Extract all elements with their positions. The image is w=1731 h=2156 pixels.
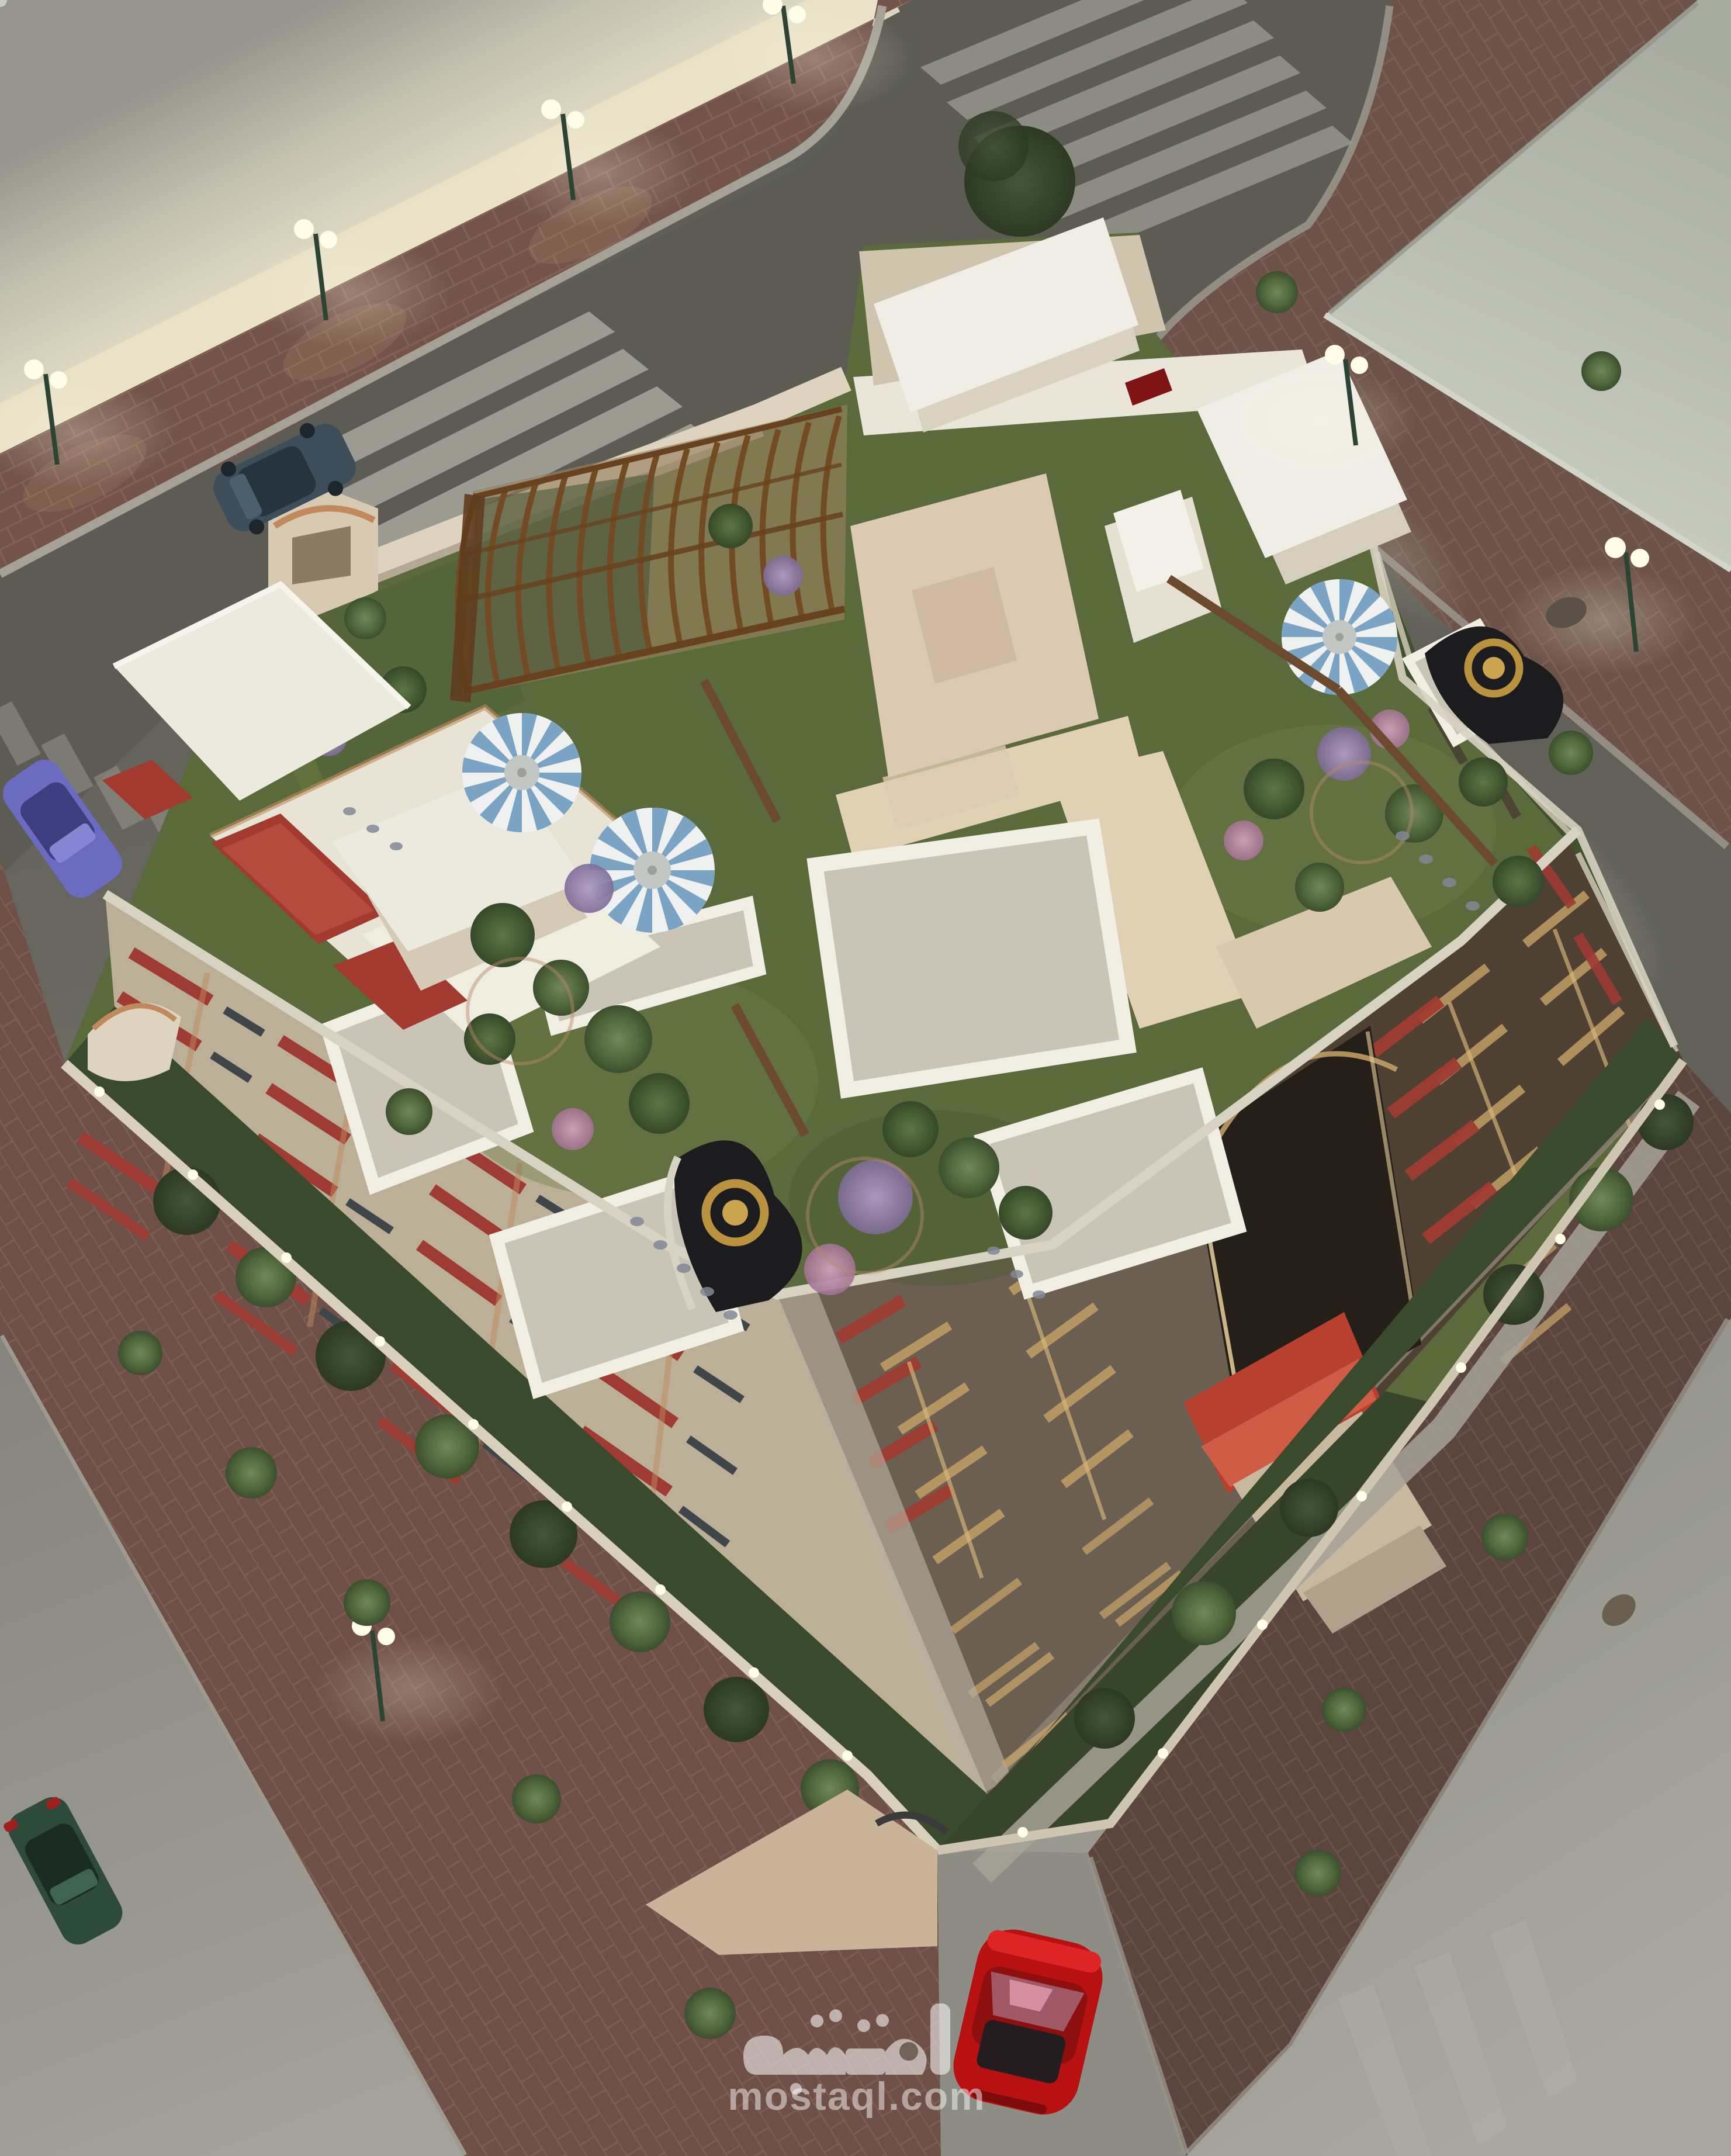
- svg-text:mostaql.com: mostaql.com: [728, 2074, 985, 2119]
